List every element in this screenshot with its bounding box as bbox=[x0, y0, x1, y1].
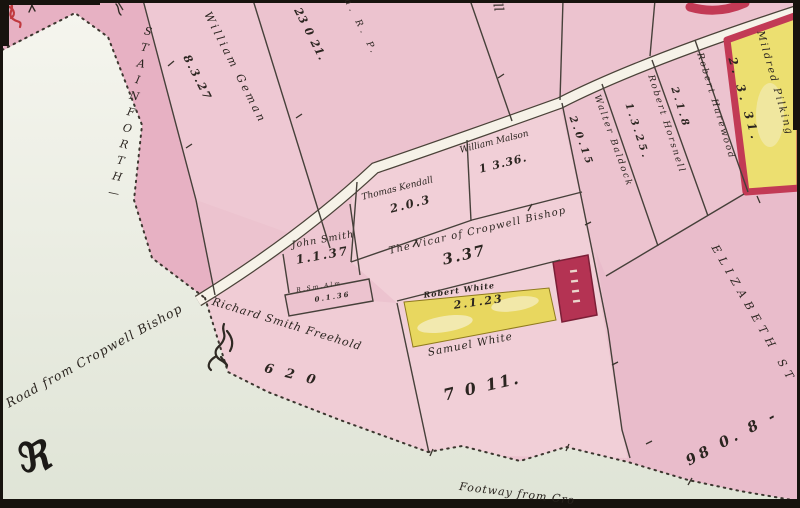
estate-map: STAINFORTH— William Geman 8.3.27 a. R. P… bbox=[0, 0, 800, 508]
blackletter-initial-r: ℜ bbox=[16, 435, 54, 479]
